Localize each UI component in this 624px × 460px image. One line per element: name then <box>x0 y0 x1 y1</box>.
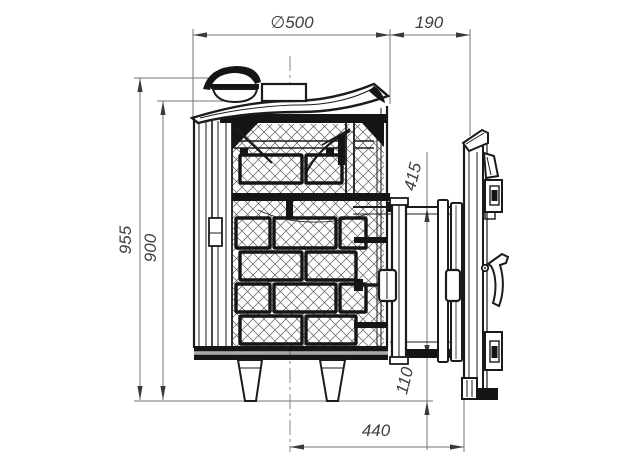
label-top-diameter: ∅500 <box>270 13 314 32</box>
arrow <box>290 444 304 449</box>
bolt-head <box>354 279 363 291</box>
handle-pivot-dot <box>484 267 486 269</box>
upper-latch-slot <box>492 190 498 201</box>
front-leg <box>238 360 262 401</box>
label-body-height: 900 <box>141 233 160 262</box>
bottom-plate <box>194 346 388 360</box>
arrow <box>376 32 390 37</box>
door-bottom-block <box>462 378 477 399</box>
flange-a-cap-bottom <box>390 357 408 364</box>
door-handle <box>488 254 508 306</box>
arrow <box>424 401 429 415</box>
arrow <box>160 101 165 115</box>
flange-a-cap-top <box>390 198 408 205</box>
arrow <box>193 32 207 37</box>
arrow <box>137 386 142 400</box>
stove-section-drawing: ∅500 190 955 900 415 110 440 <box>0 0 624 460</box>
stove-body <box>192 66 390 401</box>
plate-hanger <box>286 201 293 219</box>
middle-plate <box>232 193 390 201</box>
arrow <box>160 386 165 400</box>
shelf-tab <box>354 237 387 243</box>
side-latch <box>209 218 222 246</box>
top-bowl <box>203 66 261 102</box>
lower-latch-slot <box>492 346 498 358</box>
door-bottom-band <box>476 388 498 400</box>
door-top-cap <box>463 130 488 151</box>
bowl-cup <box>213 89 257 102</box>
door-assembly <box>462 130 508 400</box>
arrow <box>390 32 404 37</box>
drawing-sheet: ∅500 190 955 900 415 110 440 <box>0 0 624 460</box>
label-overall-height: 955 <box>116 225 135 254</box>
arrow <box>424 208 429 222</box>
arrow <box>137 78 142 92</box>
legs <box>238 360 345 401</box>
clamp-block-b <box>446 270 460 301</box>
label-tunnel-extension: 190 <box>415 13 444 32</box>
chimney-stub <box>262 84 306 101</box>
rear-leg <box>320 360 345 401</box>
label-firebox-height: 415 <box>400 160 425 193</box>
arrow <box>450 444 464 449</box>
label-axis-to-door: 440 <box>362 421 391 440</box>
label-bottom-clearance: 110 <box>392 365 417 396</box>
shelf-tab <box>354 322 387 328</box>
arrow <box>456 32 470 37</box>
